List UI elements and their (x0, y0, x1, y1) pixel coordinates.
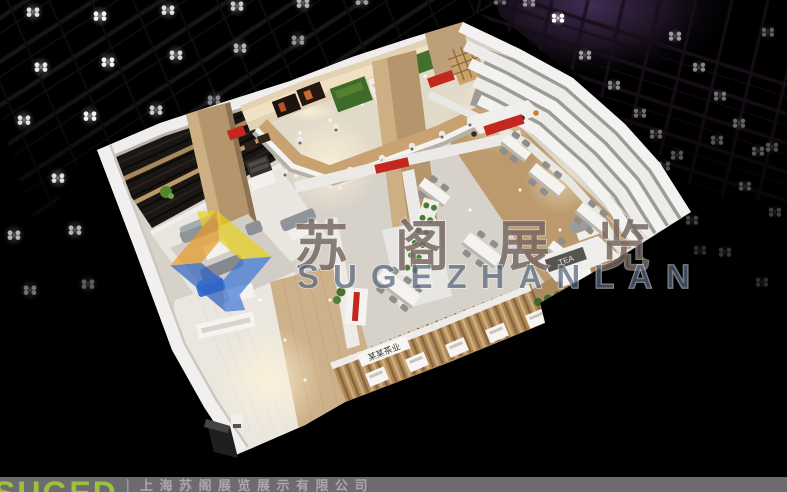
svg-text:SUGEZHANLAN: SUGEZHANLAN (297, 258, 704, 295)
svg-text:上海苏阁展览展示有限公司: 上海苏阁展览展示有限公司 (140, 478, 374, 492)
svg-text:SUGED: SUGED (0, 475, 118, 492)
